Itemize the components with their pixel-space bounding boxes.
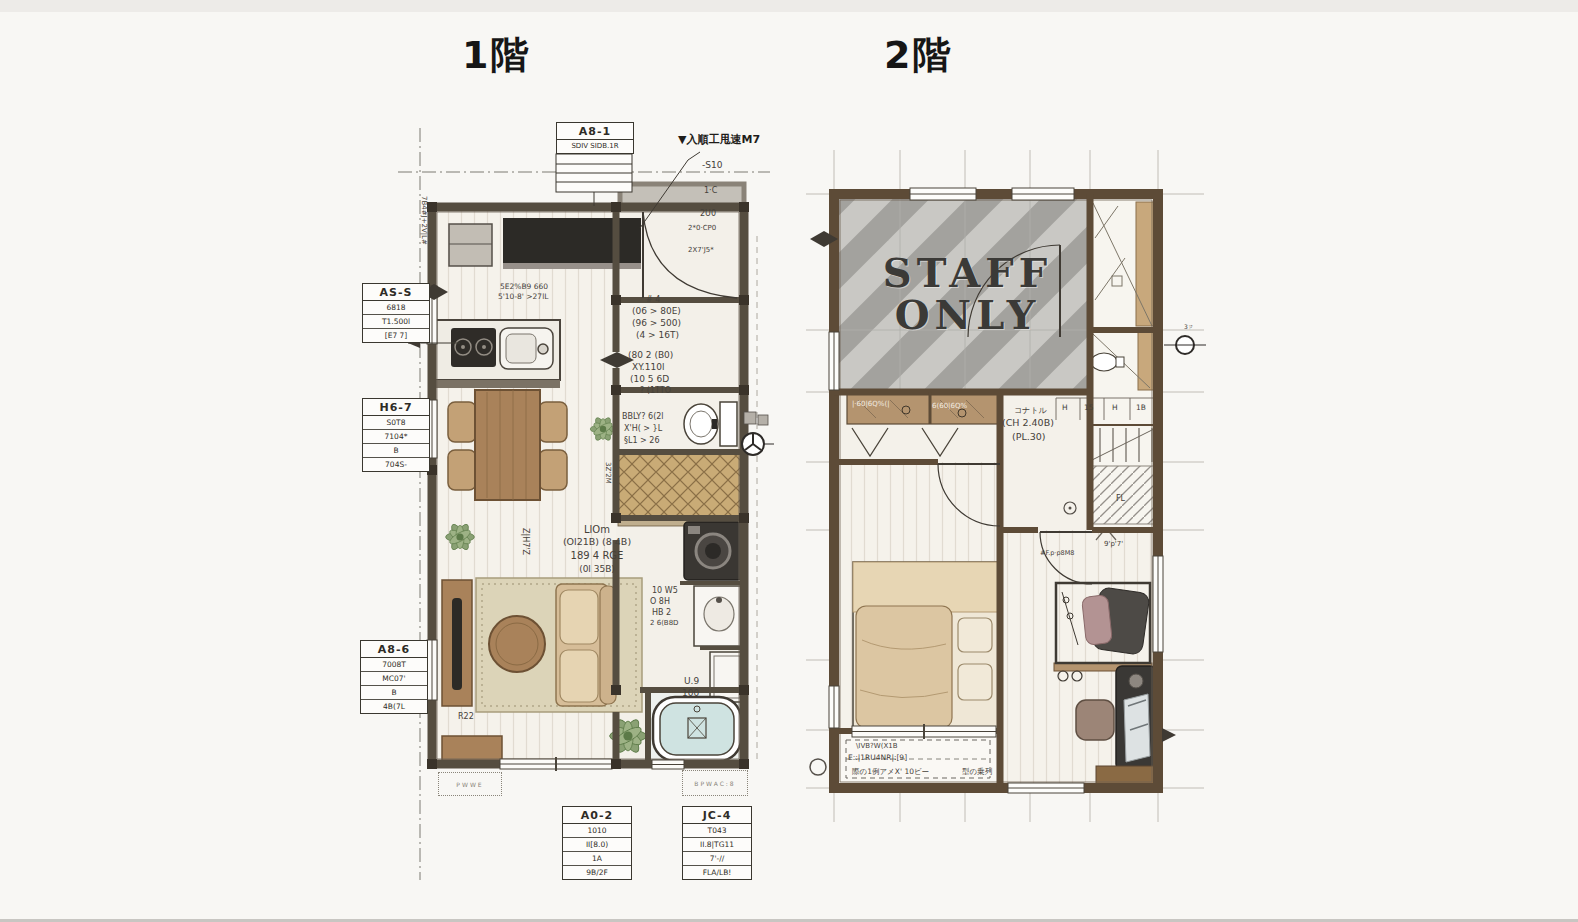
fl-note: FL: [1116, 494, 1125, 503]
kitchen-shelf: [503, 263, 641, 269]
desk-chair: [1076, 700, 1114, 740]
label-row: T043: [683, 824, 751, 838]
label-row: 4B(7L: [361, 700, 427, 713]
grid-cell-label: H: [1062, 404, 1068, 413]
ldk-note: LlOm: [552, 524, 642, 536]
ldk-note: (Ol21B) (8 4B): [545, 537, 649, 548]
label-title: A0-2: [563, 807, 631, 824]
hall-note: (10 5 6D: [630, 374, 669, 384]
balcony-note: E::|1RU4NR|:[9]: [848, 754, 907, 763]
staff-only-line1: STAFF: [845, 252, 1090, 294]
pillow: [958, 618, 992, 652]
balcony-note: 際の1例アメX' 10ビー: [852, 768, 929, 777]
ldk-vertical-note: Z|H7'Z: [521, 528, 530, 555]
washroom-note: 10 W5: [652, 586, 678, 595]
bed: [853, 562, 998, 730]
dining-chair: [448, 402, 476, 442]
kitchen-note: 5'10-8' >27lL: [498, 293, 548, 302]
toilet-note: BBLY? 6(2l: [622, 412, 664, 421]
hall2-note: コナトル: [1014, 406, 1047, 415]
hall-note: # 4: [646, 295, 660, 304]
faucet: [538, 344, 548, 354]
closet-band-note: 6(60|6Q%: [932, 402, 967, 410]
symbol-note: 3ㄗ: [1184, 324, 1194, 331]
floorplan-page: 1階 2階 STAFF ONLY A8-1 SDIV SIDB.1R AS-S …: [0, 0, 1578, 922]
floor-level-note: (PL.30): [1012, 432, 1046, 443]
closet-band-note: |·60|6Q%(|: [852, 400, 890, 408]
label-row: 7104*: [363, 430, 429, 444]
porch-note: 1·C: [704, 186, 717, 195]
label-row: 6818: [363, 301, 429, 315]
entry-construction-note: ▼入順工甩速M7: [678, 134, 760, 147]
side-vertical-note: 7B4#J+2V|L#: [420, 196, 428, 245]
grid-cell-label: 1B: [1136, 404, 1146, 413]
label-box-ass: AS-S 6818 T1.500l [E7 7]: [362, 283, 430, 343]
tv-note: R22: [458, 712, 474, 721]
ldk-note: (0l 35B): [552, 564, 642, 574]
staff-only-line2: ONLY: [845, 294, 1090, 336]
bench: [442, 736, 502, 762]
dining-chair: [539, 450, 567, 490]
s10-note: -S10: [702, 160, 722, 170]
label-row: T1.500l: [363, 315, 429, 329]
label-row: MC07': [361, 672, 427, 686]
label-row: B: [363, 444, 429, 458]
label-box-jc4: JC-4 T043 II.8|TG11 7'-// FLA/LB!: [682, 806, 752, 880]
u9-note: 100: [682, 688, 699, 698]
washroom-note: HB 2: [652, 608, 671, 617]
kitchen-note: 5E2%B9 660: [500, 283, 548, 292]
tv: [452, 598, 462, 690]
porch-note: 2U0: [700, 209, 716, 218]
kitchen-wall-cabinet: [503, 218, 641, 263]
hall-note: (4 > 16T): [636, 330, 679, 340]
label-row: 1A: [563, 852, 631, 866]
coffee-table: [489, 616, 545, 672]
label-row: 7'-//: [683, 852, 751, 866]
refrigerator: [449, 224, 492, 266]
label-title: JC-4: [683, 807, 751, 824]
washroom-note: 2 6(B8D: [650, 619, 679, 627]
label-box-a02: A0-2 1010 II[8.0) 1A 9B/2F: [562, 806, 632, 880]
stove: [451, 328, 496, 367]
small-sink: [1091, 353, 1117, 371]
dining-chair: [539, 402, 567, 442]
label-row: FLA/LB!: [683, 866, 751, 879]
label-row: S0T8: [363, 416, 429, 430]
porch-note: 2*0·CP0: [688, 224, 716, 232]
label-row: [E7 7]: [363, 329, 429, 342]
toilet-note: X'H( > }L: [624, 424, 662, 433]
hall-note: (80 2 (B0): [628, 350, 673, 360]
genkan-note: 3Z'2M: [604, 462, 612, 484]
balcony-note: 型の乗列: [962, 768, 992, 777]
label-row: B: [361, 686, 427, 700]
approval-stamp: PWWE: [438, 772, 502, 796]
label-row: 1010: [563, 824, 631, 838]
as1-ladder: [556, 154, 632, 192]
wic-note: #F.p·p8M8: [1040, 550, 1074, 557]
marker-circle: [810, 759, 826, 775]
label-title: A8-6: [361, 641, 427, 658]
counter-shadow: [432, 380, 560, 388]
upper-closet: [1090, 199, 1158, 330]
label-row: 704S-: [363, 458, 429, 471]
stair-note: 9'p'7': [1104, 540, 1123, 548]
balcony-note: \IVB?W(X1B: [856, 742, 897, 750]
label-row: II.8|TG11: [683, 838, 751, 852]
label-title: H6-7: [363, 399, 429, 416]
desk-unit: [1116, 666, 1156, 770]
label-title: AS-S: [363, 284, 429, 301]
label-box-a86: A8-6 7008T MC07' B 4B(7L: [360, 640, 428, 714]
staff-only-label: STAFF ONLY: [845, 252, 1090, 336]
washroom2: [1090, 330, 1158, 392]
floorplan-drawing: [0, 0, 1578, 922]
hall-note: XY.110l: [632, 362, 664, 372]
ceiling-height-note: (CH 2.40B): [1002, 418, 1054, 429]
label-box-as1: A8-1 SDIV SIDB.1R: [556, 122, 634, 154]
toilet: [684, 402, 737, 446]
grid-cell-label: H: [1112, 404, 1118, 413]
approval-stamp: BPWAC:8: [682, 770, 748, 796]
label-box-h67: H6-7 S0T8 7104* B 704S-: [362, 398, 430, 472]
porch-note: 2X7'J5*: [688, 246, 714, 254]
sofa-cushion: [560, 650, 598, 702]
hall-note: ? (1TTO: [640, 386, 671, 395]
label-row: 9B/2F: [563, 866, 631, 879]
label-row: II[8.0): [563, 838, 631, 852]
floor2-title: 2階: [884, 30, 952, 81]
washroom-note: O 8H: [650, 597, 670, 606]
pillow: [958, 664, 992, 700]
bathtub: [653, 697, 741, 761]
hall-note: (06 > 80E): [632, 306, 681, 316]
floor1-title: 1階: [462, 30, 530, 81]
hall-note: (96 > 500): [632, 318, 681, 328]
duvet: [856, 606, 952, 728]
washing-machine: [684, 522, 742, 580]
grid-cell-label: 15: [1084, 404, 1094, 413]
u9-note: U.9: [684, 676, 699, 686]
hanging-clothes-mauve: [1082, 595, 1113, 645]
toilet-note: §L1 > 26: [624, 436, 660, 445]
vanity-sink: [694, 586, 744, 646]
dining-chair: [448, 450, 476, 490]
label-row: 7008T: [361, 658, 427, 672]
genkan-tile: [618, 452, 744, 518]
label-row: SDIV SIDB.1R: [557, 140, 633, 153]
ldk-note: 189 4 RGE: [552, 550, 642, 562]
label-title: A8-1: [557, 123, 633, 140]
sofa-cushion: [560, 590, 598, 644]
dining-table: [475, 390, 540, 500]
floor1-plan: [408, 152, 774, 771]
